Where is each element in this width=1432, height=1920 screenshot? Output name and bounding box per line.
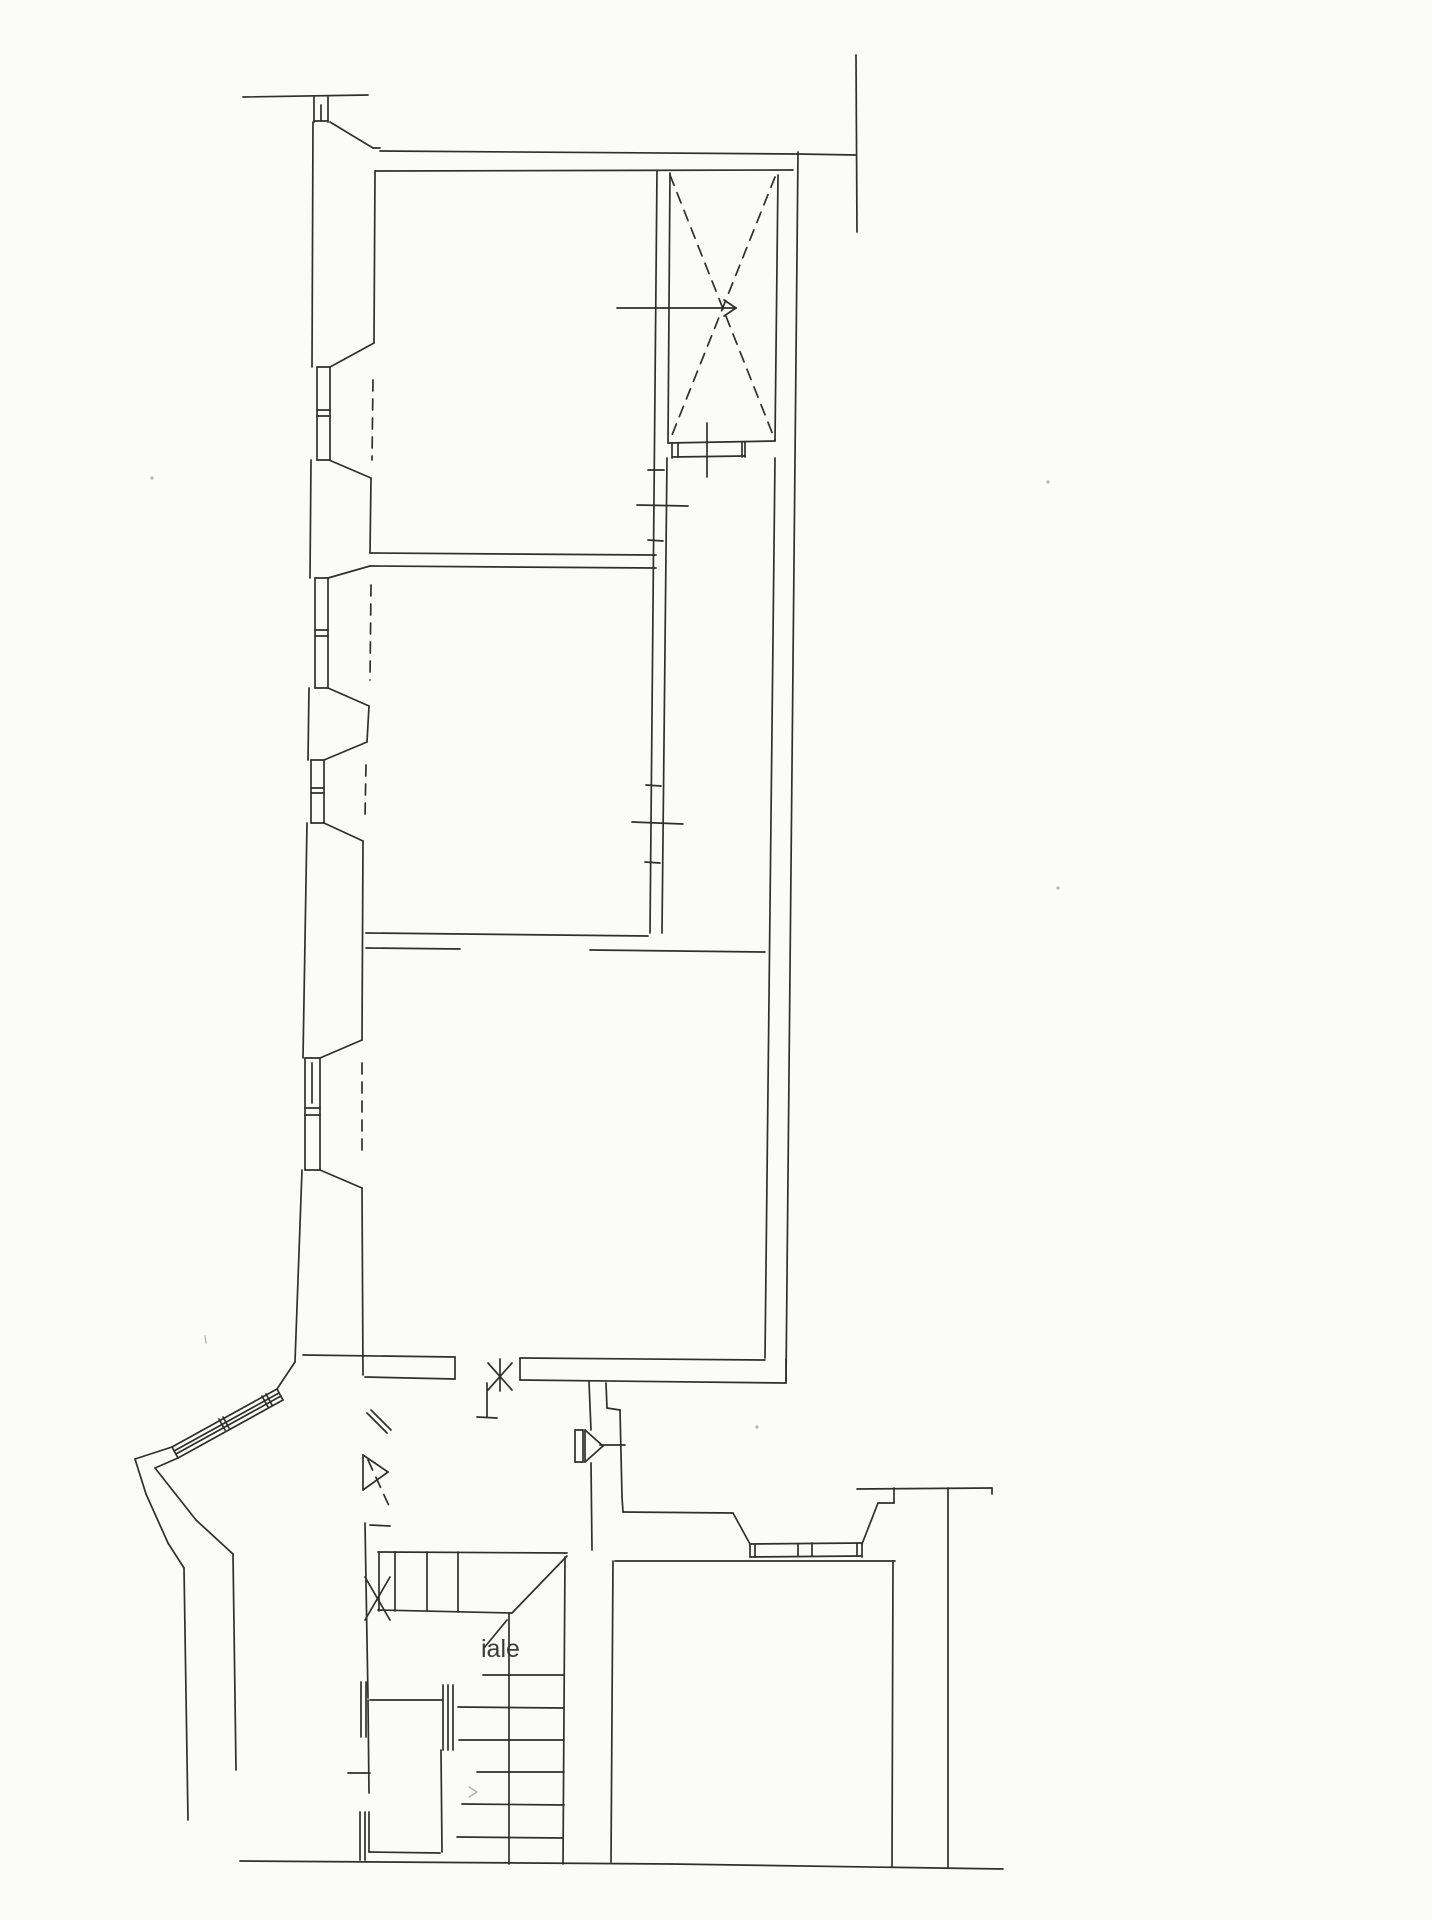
plan-wall-line [295,1170,302,1362]
scan-speckle [1056,886,1059,889]
plan-dashed-line [365,765,366,818]
scan-speckle [1046,480,1049,483]
plan-wall-line [243,95,368,97]
plan-wall-line [589,1382,591,1430]
plan-wall-line [668,441,775,443]
plan-wall-line [645,862,660,863]
plan-wall-line [662,458,667,933]
plan-text-label: iale [481,1635,520,1663]
scan-speckle [755,1425,758,1428]
plan-wall-line [135,1447,172,1459]
plan-wall-line [591,1463,592,1550]
plan-wall-line [607,1408,620,1410]
plan-wall-line [370,1525,390,1526]
plan-wall-line [632,822,683,824]
plan-dashed-line [372,380,373,460]
plan-wall-line [375,170,793,171]
plan-wall-line [329,460,371,478]
plan-wall-line [563,1557,565,1864]
plan-wall-line [312,122,313,367]
plan-wall-line [856,55,857,232]
plan-wall-line [178,1400,283,1458]
plan-wall-line [362,1188,363,1375]
plan-wall-line [520,1380,786,1383]
plan-wall-line [365,1377,455,1379]
plan-wall-line [367,706,369,742]
plan-wall-line [611,1561,613,1862]
plan-wall-line [369,1852,440,1853]
plan-wall-line [328,566,370,578]
plan-wall-line [176,1396,281,1454]
plan-wall-line [370,478,371,553]
plan-wall-line [303,823,307,1058]
plan-wall-line [733,1513,750,1544]
plan-wall-line [798,154,856,155]
plan-wall-line [362,841,363,1040]
plan-wall-line [750,1556,862,1557]
plan-wall-line [606,1383,607,1408]
scan-speckle [150,476,153,479]
plan-wall-line [585,1446,603,1462]
plan-wall-line [328,688,369,706]
plan-wall-line [330,343,374,367]
plan-wall-line [892,1561,893,1866]
plan-wall-line [862,1503,878,1544]
plan-wall-line [462,1804,564,1805]
plan-wall-line [366,948,460,949]
plan-wall-line [623,1512,733,1513]
plan-wall-line [724,308,736,316]
plan-wall-line [622,1497,623,1512]
plan-wall-line [310,460,311,578]
plan-wall-line [277,1362,295,1389]
plan-wall-line [637,505,688,506]
plan-wall-line [330,122,373,148]
plan-wall-line [146,1494,168,1543]
plan-wall-line [590,950,765,952]
plan-wall-line [786,152,798,1381]
plan-wall-line [520,1358,765,1360]
plan-wall-line [374,171,375,343]
plan-wall-line [308,688,309,760]
plan-wall-line [240,1861,672,1864]
plan-wall-line [646,785,661,786]
plan-wall-line [196,1520,233,1554]
plan-wall-line [363,1455,388,1472]
plan-wall-line [775,175,778,441]
plan-wall-line [378,1610,512,1613]
plan-wall-line [370,553,656,555]
plan-wall-line [765,458,775,1358]
plan-wall-line [620,1410,622,1497]
plan-wall-line [672,1864,1003,1869]
plan-wall-line [477,1417,497,1418]
plan-wall-line [366,933,648,936]
plan-wall-line [168,1543,184,1568]
plan-wall-line [368,1700,369,1793]
plan-wall-line [363,1472,388,1490]
plan-wall-line [184,1568,188,1820]
plan-wall-line [672,456,745,457]
plan-dashed-line [370,585,371,680]
scan-artifact-line [469,1787,477,1792]
plan-wall-line [320,1170,362,1188]
plan-wall-line [324,742,367,760]
plan-wall-line [512,1556,567,1613]
plan-wall-line [648,540,663,541]
plan-wall-line [380,151,798,154]
plan-wall-line [585,1430,603,1446]
plan-wall-line [458,1707,564,1708]
plan-wall-line [857,1488,992,1489]
scanned-floorplan-page: iale [0,0,1432,1920]
plan-wall-line [135,1459,146,1494]
plan-wall-line [155,1458,178,1468]
plan-wall-line [365,1523,368,1698]
plan-wall-line [233,1554,236,1770]
plan-wall-line [441,1750,442,1852]
plan-wall-line [155,1468,196,1520]
plan-wall-line [303,1355,455,1357]
plan-wall-line [370,566,656,568]
scan-artifact-line [205,1336,206,1343]
plan-wall-line [320,1040,362,1058]
plan-wall-line [750,1543,862,1544]
floorplan-drawing: iale [0,0,1432,1920]
scan-artifact-line [469,1792,477,1797]
plan-wall-line [324,823,363,841]
plan-wall-line [378,1552,567,1553]
plan-wall-line [457,1837,563,1838]
plan-wall-line [650,171,657,933]
